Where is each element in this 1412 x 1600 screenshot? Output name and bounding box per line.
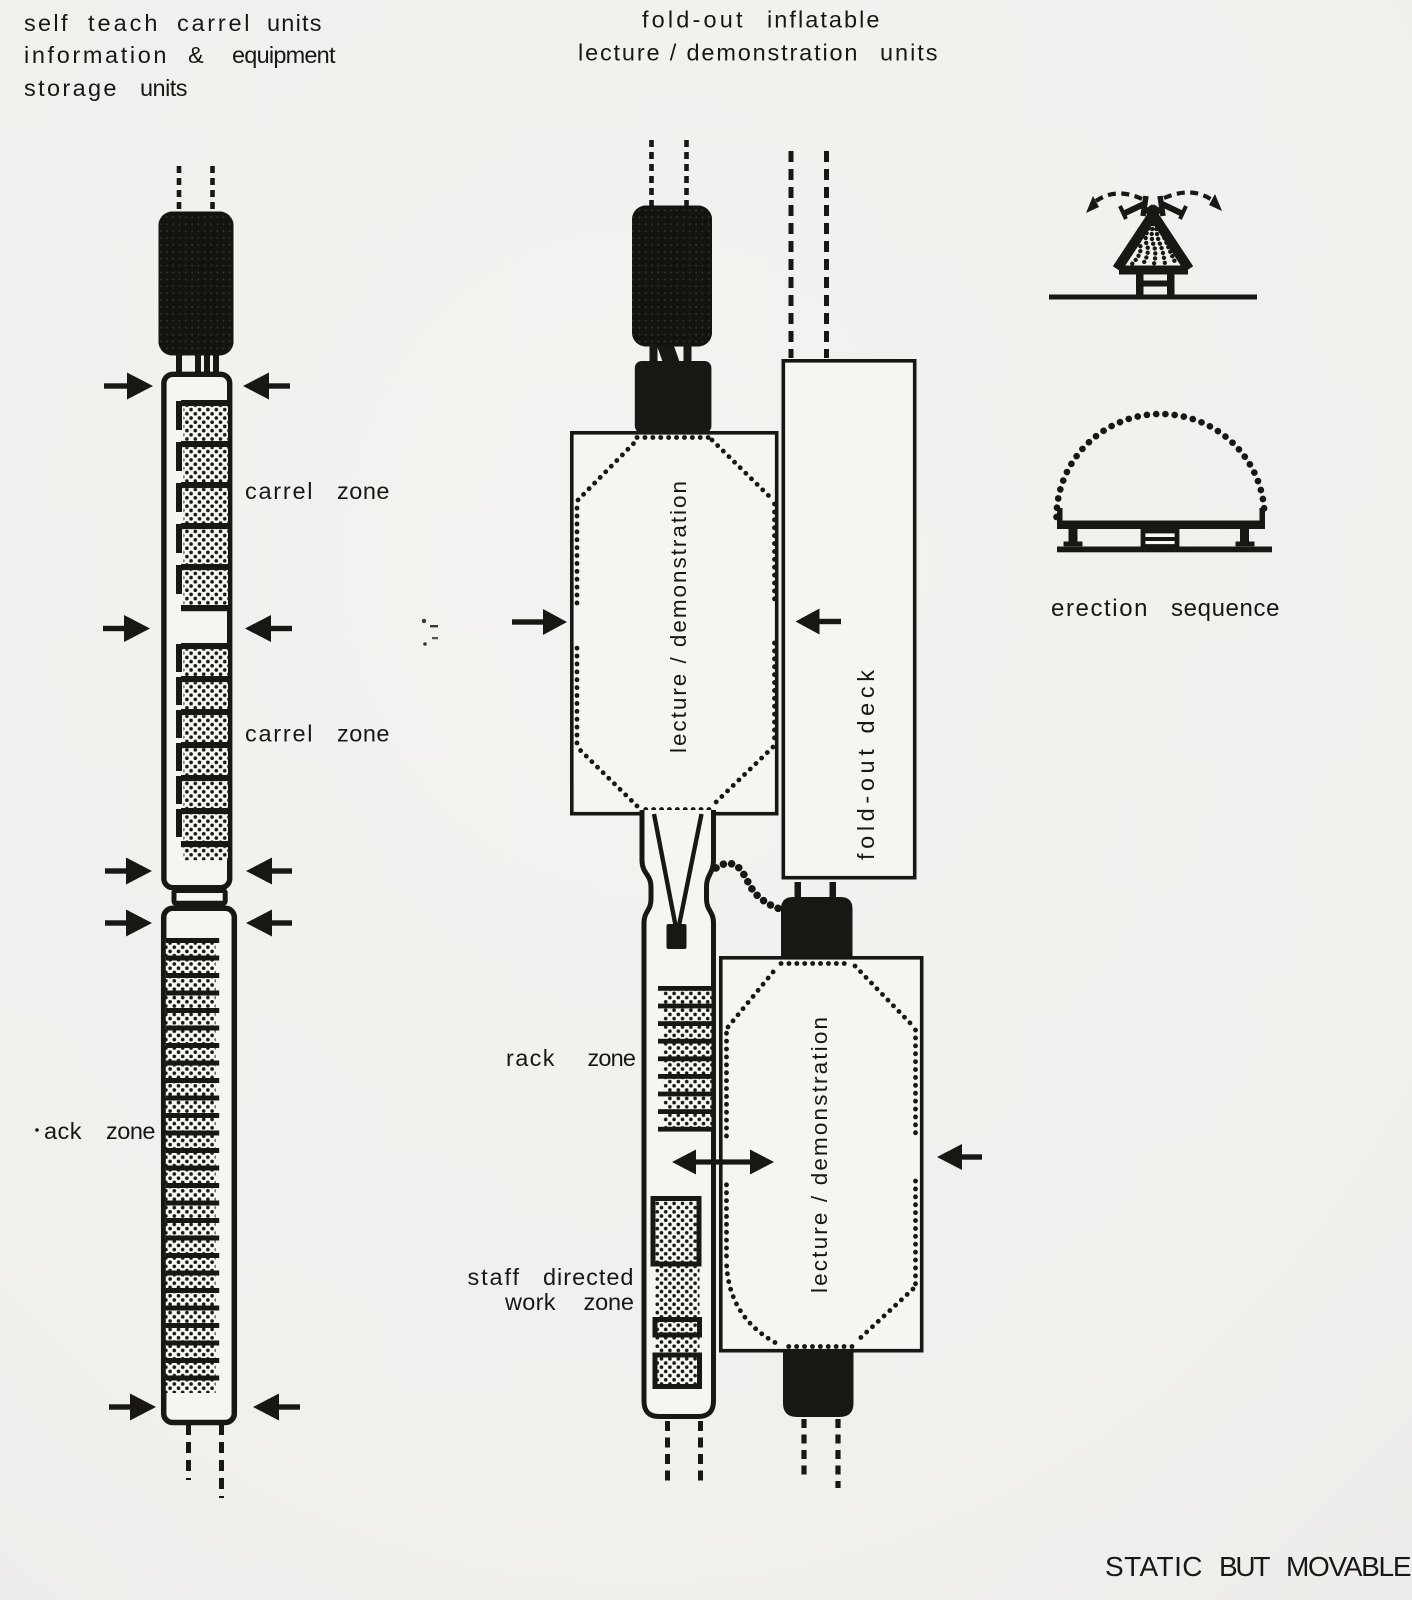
svg-text:fold-out: fold-out bbox=[642, 7, 743, 33]
svg-text:carrel: carrel bbox=[245, 721, 313, 747]
svg-text:STATIC: STATIC bbox=[1105, 1551, 1203, 1582]
svg-text:ack: ack bbox=[44, 1118, 82, 1144]
svg-text:directed: directed bbox=[543, 1264, 634, 1290]
svg-text:rack: rack bbox=[506, 1045, 555, 1071]
svg-text:BUT: BUT bbox=[1219, 1551, 1271, 1582]
svg-text:self: self bbox=[24, 10, 68, 36]
svg-text:inflatable: inflatable bbox=[767, 7, 880, 33]
svg-text:erection: erection bbox=[1051, 595, 1148, 622]
svg-text:work: work bbox=[504, 1289, 556, 1315]
svg-text:lecture / demonstration: lecture / demonstration bbox=[807, 1017, 832, 1293]
svg-text:zone: zone bbox=[337, 721, 390, 747]
svg-text:zone: zone bbox=[588, 1045, 637, 1071]
svg-text:storage: storage bbox=[24, 75, 117, 101]
svg-text:&: & bbox=[188, 42, 204, 68]
svg-text:carrel: carrel bbox=[177, 10, 250, 36]
svg-text:zone: zone bbox=[584, 1289, 635, 1315]
svg-text:units: units bbox=[140, 75, 188, 101]
svg-text:lecture / demonstration: lecture / demonstration bbox=[578, 40, 858, 66]
svg-text:zone: zone bbox=[337, 478, 390, 504]
svg-text:units: units bbox=[267, 10, 322, 36]
svg-text:fold-out deck: fold-out deck bbox=[853, 670, 879, 860]
svg-text:lecture / demonstration: lecture / demonstration bbox=[666, 481, 691, 753]
svg-text:MOVABLE: MOVABLE bbox=[1286, 1551, 1412, 1582]
svg-text:equipment: equipment bbox=[232, 42, 336, 68]
svg-text:teach: teach bbox=[88, 10, 158, 36]
svg-text:staff: staff bbox=[468, 1264, 520, 1290]
svg-text:carrel: carrel bbox=[245, 478, 313, 504]
svg-text:zone: zone bbox=[106, 1118, 156, 1144]
svg-text:sequence: sequence bbox=[1171, 595, 1280, 622]
